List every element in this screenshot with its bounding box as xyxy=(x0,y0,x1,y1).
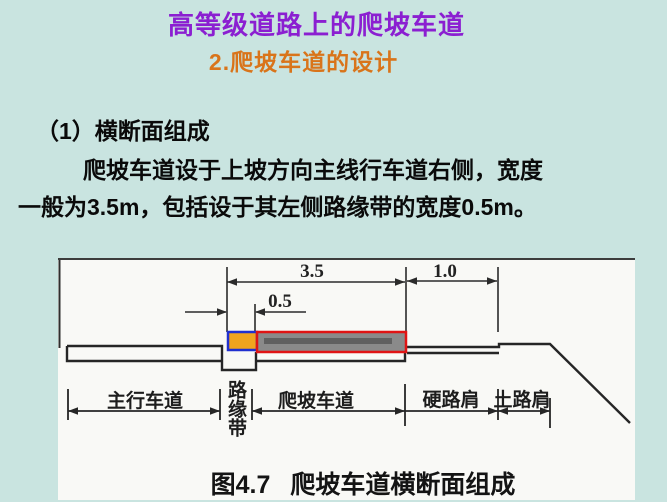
dim-label-0-5: 0.5 xyxy=(250,291,310,313)
curb-strip-highlight xyxy=(228,332,257,350)
slide-subtitle: 2.爬坡车道的设计 xyxy=(0,43,637,77)
slide-root: 高等级道路上的爬坡车道 2.爬坡车道的设计 （1）横断面组成 爬坡车道设于上坡方… xyxy=(0,0,667,500)
label-climbing-lane: 爬坡车道 xyxy=(256,386,376,413)
label-main-lane: 主行车道 xyxy=(85,386,205,413)
body-text-line-2: 一般为3.5m，包括设于其左侧路缘带的宽度0.5m。 xyxy=(18,188,537,222)
figure-caption-number: 图4.7 xyxy=(211,471,271,499)
cross-section-figure: 3.5 1.0 0.5 主行车道 路缘带 爬坡车道 硬路肩 土路肩 图4.7爬坡… xyxy=(58,258,635,500)
label-earth-shoulder: 土路肩 xyxy=(472,385,572,412)
label-curb-strip: 路缘带 xyxy=(224,376,246,440)
slide-title: 高等级道路上的爬坡车道 xyxy=(0,5,650,42)
body-text-line-1: 爬坡车道设于上坡方向主线行车道右侧，宽度 xyxy=(83,151,543,185)
figure-caption-text: 爬坡车道横断面组成 xyxy=(290,471,515,499)
section-heading: （1）横断面组成 xyxy=(36,112,210,146)
dim-label-1-0: 1.0 xyxy=(415,261,475,283)
figure-caption: 图4.7爬坡车道横断面组成 xyxy=(208,465,518,501)
climbing-lane-highlight xyxy=(257,332,406,352)
dim-label-3-5: 3.5 xyxy=(282,261,342,283)
